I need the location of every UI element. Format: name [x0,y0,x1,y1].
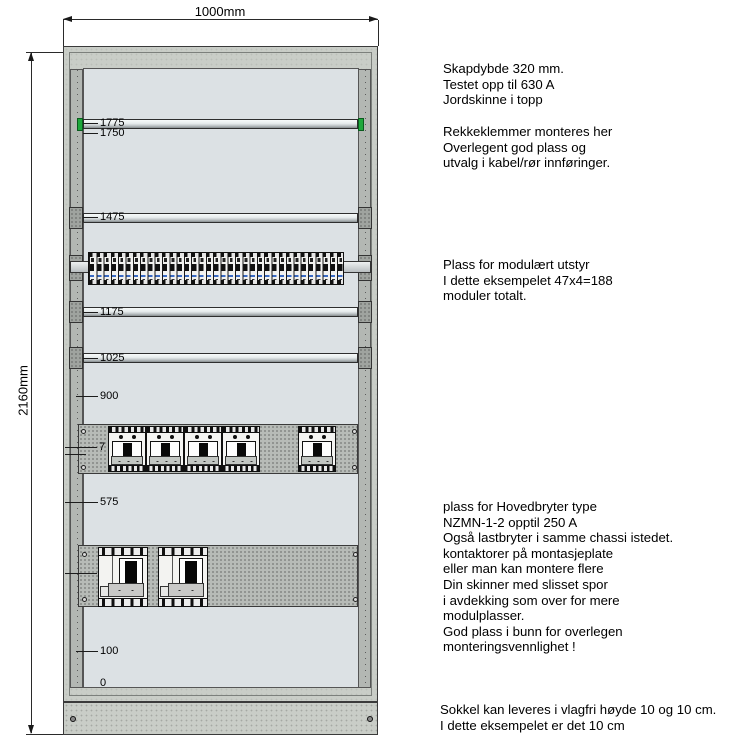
mccb-terminal-strip-bottom [223,465,259,471]
annotation-line: Din skinner med slisset spor [443,577,673,593]
mccb-indicator-dots [309,435,313,439]
main-breaker-nzmn [158,547,208,607]
annotation-block-top: Skapdybde 320 mm. Testet opp til 630 A J… [443,61,564,108]
chassis-screw [353,552,358,557]
mccb-group [108,426,260,472]
rail-bracket [358,347,372,369]
main-breaker-slot-1 [98,547,218,607]
nzmn-terminal-strip-top [99,548,147,556]
mccb-indicator-dots [195,435,199,439]
annotation-line: kontaktorer på montasjeplate [443,546,673,562]
mccb-breaker [146,426,184,472]
mccb-terminal-strip-top [109,427,145,433]
annotation-line: I dette eksempelet er det 10 cm [440,718,716,734]
main-breaker-nzmn [98,547,148,607]
height-label-1175: 1175 [100,307,124,318]
earth-bar-cap-right [358,118,364,131]
annotation-line: eller man kan montere flere [443,561,673,577]
annotation-block-terminals: Rekkeklemmer monteres her Overlegent god… [443,124,612,171]
annotation-line: Testet opp til 630 A [443,77,564,93]
leader-line-main-breaker [65,573,97,574]
height-label-1025: 1025 [100,353,124,364]
mccb-indicator-dots [119,435,123,439]
mccb-terminal-strip-top [185,427,221,433]
dimension-top-arrow-right [369,16,378,22]
mccb-terminal-strip-bottom [299,465,335,471]
height-label-0: 0 [100,678,106,689]
annotation-line: Også lastbryter i samme chassi istedet. [443,530,673,546]
annotation-line: modulplasser. [443,608,673,624]
mccb-chassis-panel [78,424,358,474]
main-breaker-chassis-panel [78,545,358,607]
mounting-rail-right [358,69,371,688]
nzmn-mounting-plate [108,583,144,597]
mccb-breaker [108,426,146,472]
rail-bracket [358,301,372,323]
rail-bracket [69,207,83,229]
chassis-screw [352,429,357,434]
annotation-line: i avdekking som over for mere [443,593,673,609]
dimension-top-ext-right [378,20,379,46]
width-dimension-label: 1000mm [130,4,310,19]
annotation-line: monteringsvennlighet ! [443,639,673,655]
mccb-terminal-strip-bottom [109,465,145,471]
annotation-line: moduler totalt. [443,288,613,304]
annotation-line: Plass for modulært utstyr [443,257,613,273]
dimension-left-arrow-bottom [28,725,34,734]
module-terminal-band-top [89,253,343,257]
height-label-1475: 1475 [100,212,124,223]
chassis-screw [82,552,87,557]
annotation-block-sokkel: Sokkel kan leveres i vlagfri høyde 10 og… [440,702,716,733]
mccb-indicator-dots [233,435,237,439]
height-dimension-label: 2160mm [16,351,31,431]
mccb-toggle [313,443,322,456]
annotation-line: utvalg i kabel/rør innføringer. [443,155,612,171]
mccb-mounting-plate [187,456,219,465]
nzmn-terminal-strip-top [159,548,207,556]
mccb-terminal-strip-top [299,427,335,433]
rail-1175 [83,307,358,317]
height-label-900: 900 [100,391,118,402]
rail-bracket [69,301,83,323]
mccb-toggle [161,443,170,456]
mccb-breaker [184,426,222,472]
annotation-block-main-breaker: plass for Hovedbryter type NZMN-1-2 oppt… [443,499,673,655]
annotation-line: Overlegent god plass og [443,140,612,156]
chassis-screw [82,597,87,602]
annotation-line: Skapdybde 320 mm. [443,61,564,77]
leader-line-aux [65,454,86,455]
module-terminal-band-bottom [89,280,343,284]
annotation-line: I dette eksempelet 47x4=188 [443,273,613,289]
mccb-breaker [222,426,260,472]
mccb-mounting-plate [149,456,181,465]
sokkel-screw [70,716,76,722]
nzmn-aux-box [100,586,109,597]
chassis-screw [352,465,357,470]
mccb-mounting-plate [111,456,143,465]
nzmn-body-divider [112,556,113,584]
annotation-line: God plass i bunn for overlegen [443,624,673,640]
mccb-toggle [123,443,132,456]
dimension-top-arrow-left [63,16,72,22]
mccb-toggle [199,443,208,456]
nzmn-mounting-plate [168,583,204,597]
mccb-mounting-plate [301,456,333,465]
height-label-100: 100 [100,646,118,657]
dimension-left-arrow-top [28,52,34,61]
chassis-screw [81,465,86,470]
sokkel-screw [367,716,373,722]
height-label-575: 575 [100,497,118,508]
mccb-terminal-strip-top [223,427,259,433]
nzmn-aux-box [160,586,169,597]
chassis-screw [353,597,358,602]
height-label-1750: 1750 [100,128,124,139]
mccb-terminal-strip-bottom [185,465,221,471]
mccb-breaker [298,426,336,472]
mccb-terminal-strip-top [147,427,183,433]
annotation-block-modules: Plass for modulært utstyr I dette eksemp… [443,257,613,304]
height-label-750-truncated: 7 [99,442,105,453]
rail-bracket [69,347,83,369]
chassis-screw [81,429,86,434]
cabinet-drawing: 1000mm 2160mm [0,0,750,750]
leader-line-750 [65,447,97,448]
annotation-line: Sokkel kan leveres i vlagfri høyde 10 og… [440,702,716,718]
annotation-line: NZMN-1-2 opptil 250 A [443,515,673,531]
mccb-indicator-dots [157,435,161,439]
annotation-line: Rekkeklemmer monteres her [443,124,612,140]
dimension-top-ext-left [63,20,64,46]
mccb-terminal-strip-bottom [147,465,183,471]
nzmn-terminal-strip-bottom [99,598,147,606]
dimension-left-ext-top [26,52,66,53]
rail-bracket [358,207,372,229]
dimension-left-ext-bottom [26,734,66,735]
mccb-mounting-plate [225,456,257,465]
annotation-line: plass for Hovedbryter type [443,499,673,515]
mccb-single [298,426,336,472]
nzmn-terminal-strip-bottom [159,598,207,606]
sokkel-plinth [63,702,378,735]
annotation-line: Jordskinne i topp [443,92,564,108]
modular-breaker-row [88,252,344,285]
mccb-toggle [237,443,246,456]
dimension-left-line [31,52,32,733]
dimension-top-line [63,19,378,20]
nzmn-body-divider [172,556,173,584]
